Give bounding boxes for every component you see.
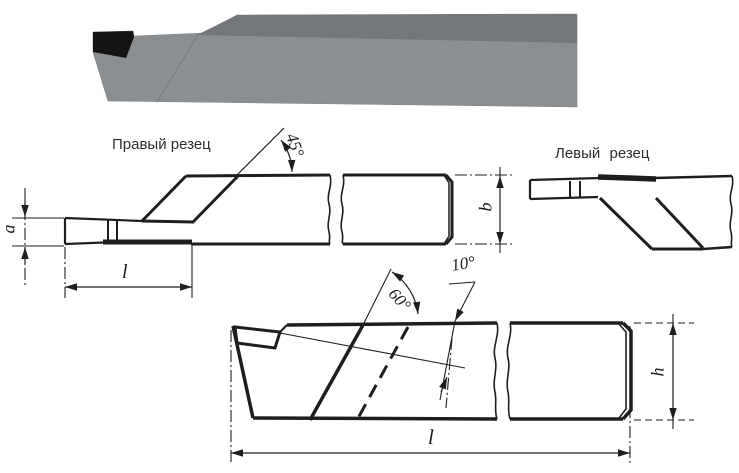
left-cutter-top-view [530,176,733,249]
dim-h-label: h [649,368,667,377]
dim-b-label: b [477,203,495,212]
dim-l-blade-label: l [122,262,128,282]
angle-45-annotation [236,128,292,176]
side-view-thin-trace [280,333,465,368]
dim-l-overall-label: l [428,427,434,448]
side-view-insert [235,327,280,348]
technical-drawing [0,0,739,473]
side-view-edge-60 [310,325,363,420]
angle-10-label: 10° [450,253,476,274]
drawing-canvas: Правый резец Левый резец 45° a l b 60° 1… [0,0,739,473]
right-cutter-label: Правый резец [112,137,211,152]
angle-10-annotation [440,282,475,408]
dimension-a [12,188,64,287]
dimension-l-blade [65,243,192,298]
dim-a-label: a [0,225,18,234]
side-view [233,323,631,420]
tool-3d-render [93,14,577,107]
side-view-dashed-edge [357,327,408,420]
right-cutter-top-view [65,175,452,244]
left-cutter-label: Левый резец [555,146,649,161]
